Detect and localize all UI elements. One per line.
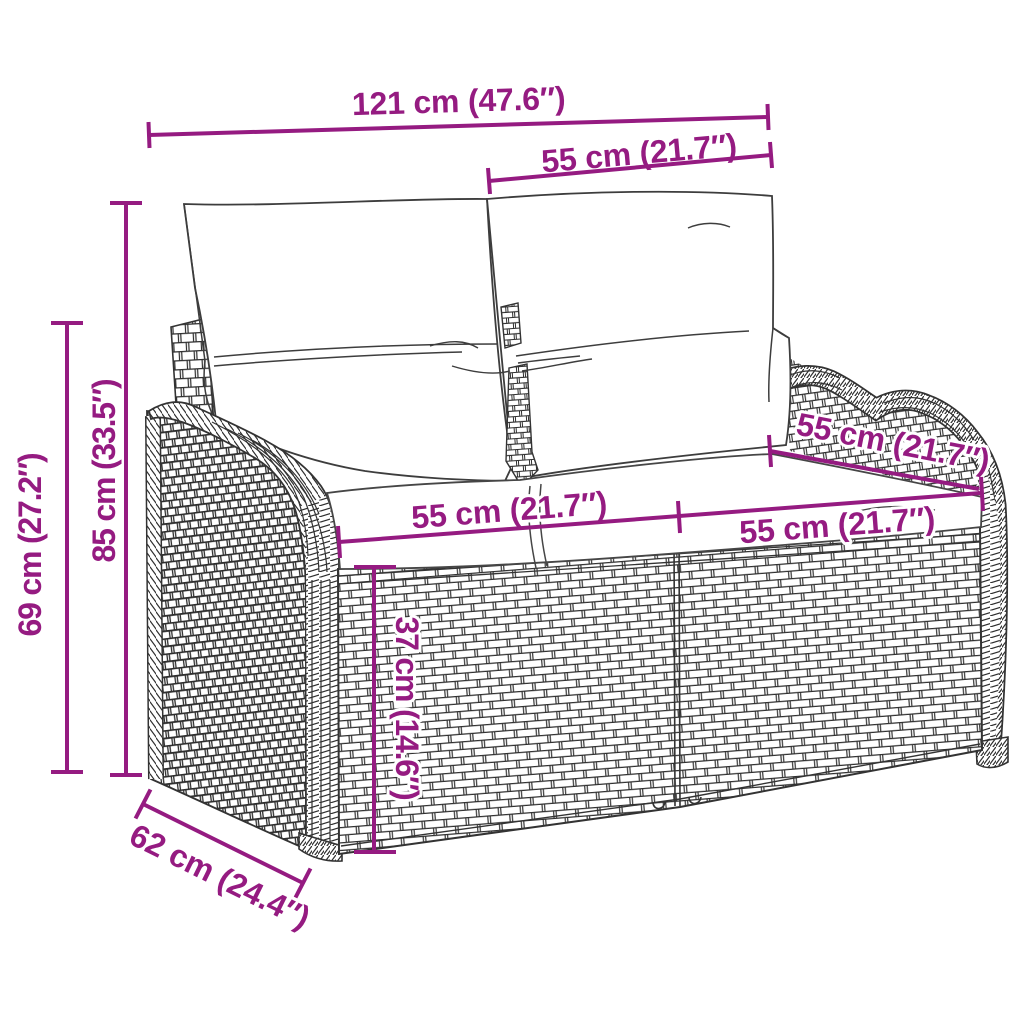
- svg-text:69 cm (27.2″): 69 cm (27.2″): [12, 453, 48, 636]
- svg-text:37 cm (14.6″): 37 cm (14.6″): [389, 617, 425, 800]
- svg-text:85 cm (33.5″): 85 cm (33.5″): [86, 379, 122, 562]
- svg-text:121 cm (47.6″): 121 cm (47.6″): [351, 80, 566, 122]
